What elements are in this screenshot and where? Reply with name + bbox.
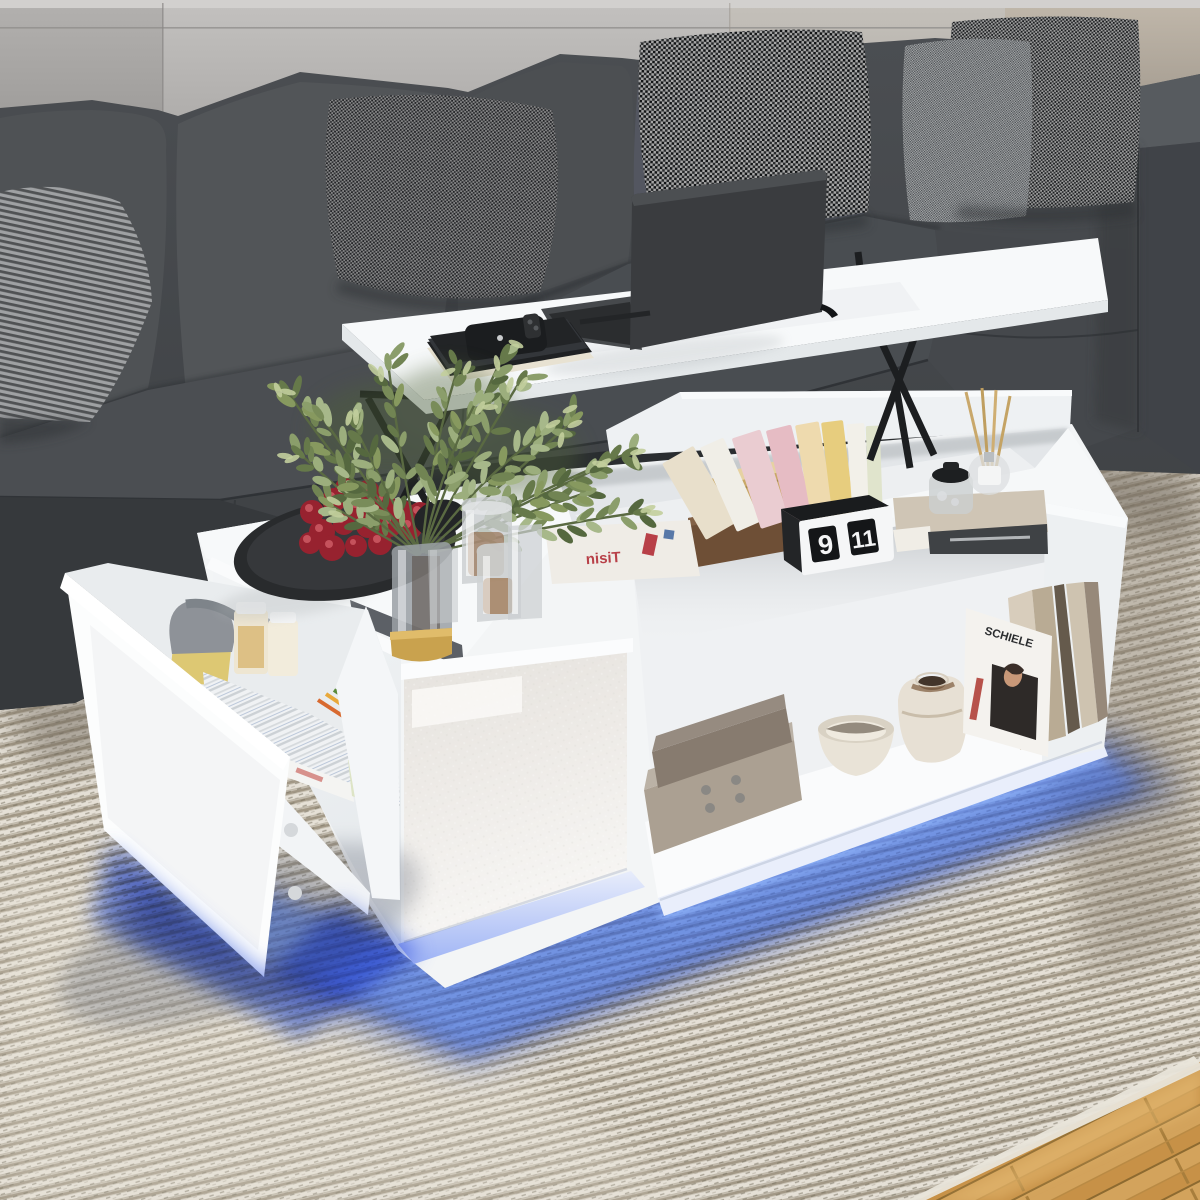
svg-text:11: 11	[850, 524, 878, 553]
svg-text:nisiT: nisiT	[585, 549, 621, 568]
